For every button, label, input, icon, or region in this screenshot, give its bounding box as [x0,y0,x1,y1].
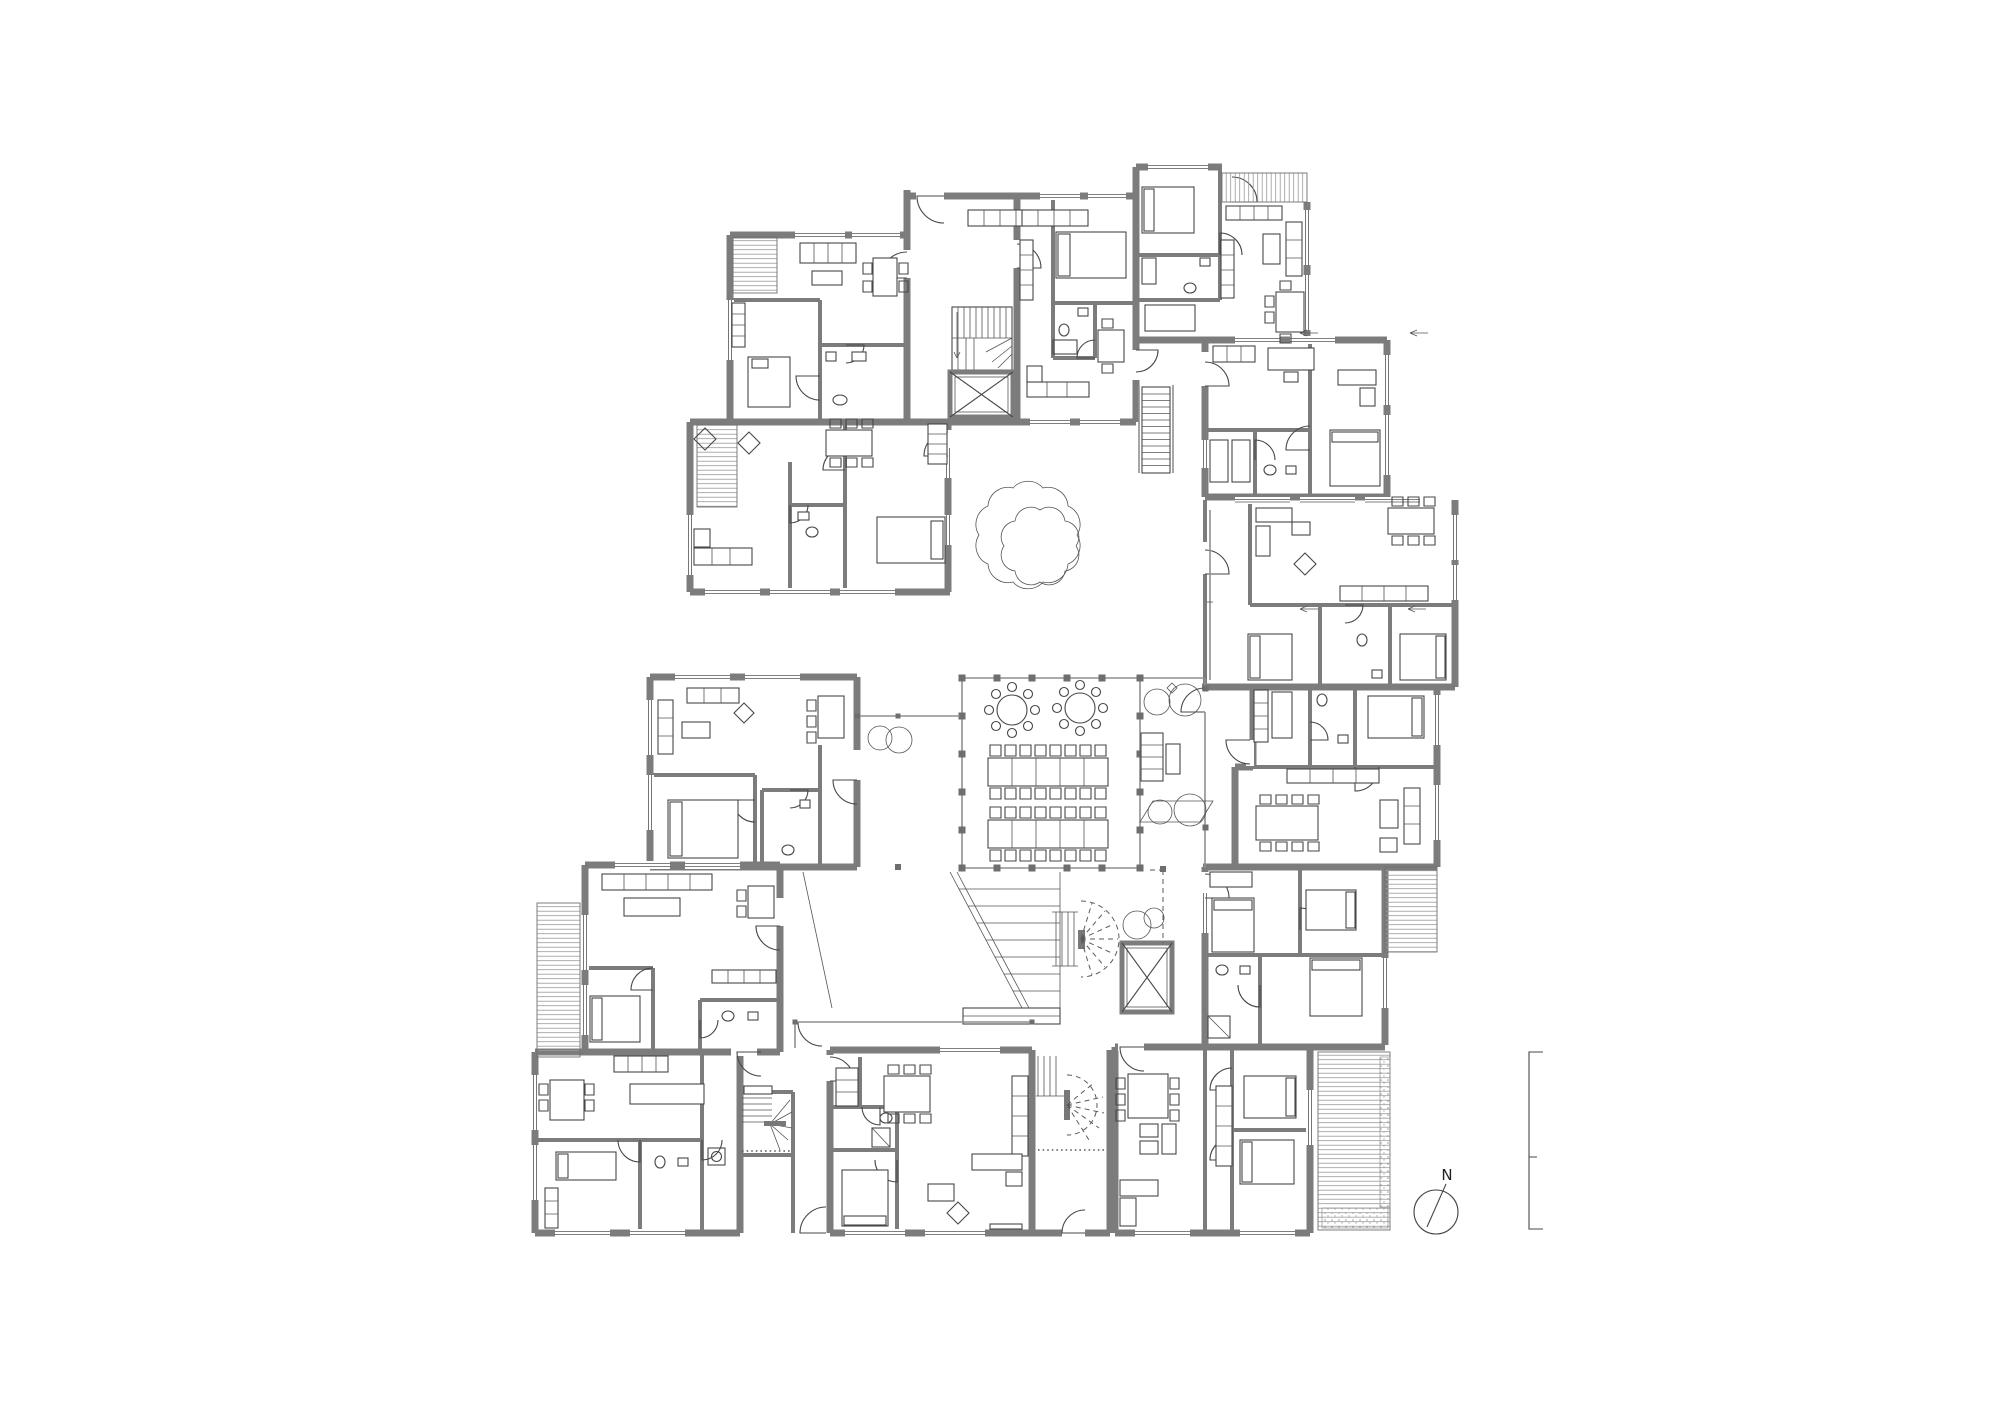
elevator [950,372,1013,417]
shrub-group [1140,794,1213,826]
balcony-hatch [1222,173,1307,202]
quarter-winder-stair [742,1086,792,1151]
spiral-stair [1052,901,1119,977]
unit-e-1 [1210,346,1380,486]
unit-e-3 [1254,690,1424,852]
terrace-deck [1318,1052,1390,1230]
unit-sw-upper [590,874,776,1042]
exterior-straight-stair [1139,385,1173,473]
unit-e-2 [1248,497,1446,680]
unit-ne [1142,187,1304,343]
path-edge [803,872,832,1008]
winder-stair-core [1036,1056,1106,1150]
u-return-staircase [952,307,1012,370]
shrub-group [1123,908,1164,939]
porch-roof-line [795,1022,1032,1048]
terrace-gravel-strip [1322,1208,1388,1228]
scale-bar [1529,1052,1543,1229]
floor-plan-drawing: N [0,0,2000,1414]
banquet-table-row [988,807,1108,861]
north-arrow: N [1414,1166,1458,1234]
balcony-hatch [733,237,777,293]
banquet-table-row [988,745,1108,799]
amphitheater-steps [950,872,1060,1024]
round-table-with-chairs [985,683,1040,738]
floor-plan-sheet: N [0,0,2000,1414]
vertical-circulation [742,307,1173,1151]
large-courtyard-tree [976,481,1080,589]
site-dashed-line [1150,870,1163,943]
communal-hall [959,675,1206,872]
terrace-gravel-strip [1380,1057,1390,1207]
north-label: N [1441,1166,1452,1184]
elevator [1122,943,1172,1012]
round-table-with-chairs [1053,681,1108,736]
shrub-group [1144,683,1201,716]
balcony-hatch [1385,867,1437,952]
lounge-shelf [1141,733,1180,781]
balcony-hatch [697,425,737,507]
paired-trees [868,726,912,753]
unit-s-middle [836,1065,1028,1229]
balcony-hatch [537,903,580,1057]
